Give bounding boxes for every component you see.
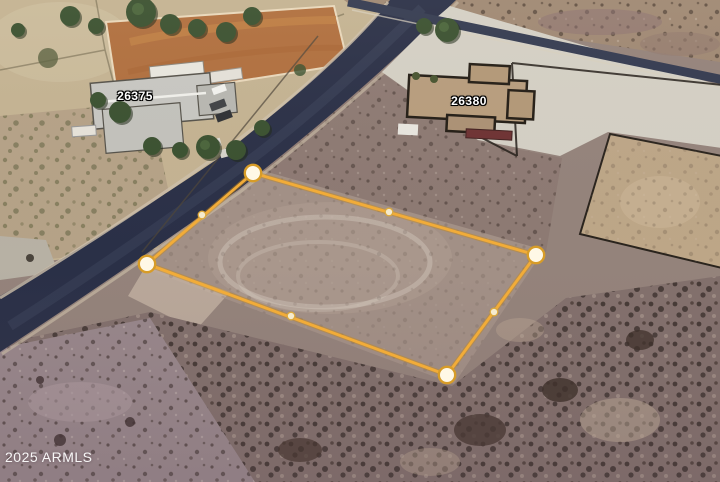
parcel-vertex-handle — [139, 256, 155, 272]
parcel-midpoint-handle — [490, 308, 498, 316]
color-grade-overlay — [0, 0, 720, 482]
parcel-vertex-handle — [528, 247, 544, 263]
aerial-map-image: 26375 26380 2025 ARMLS — [0, 0, 720, 482]
parcel-vertex-handle — [245, 165, 261, 181]
terrain-graphic — [0, 0, 720, 482]
parcel-midpoint-handle — [287, 312, 295, 320]
parcel-midpoint-handle — [198, 211, 206, 219]
parcel-midpoint-handle — [385, 208, 393, 216]
armls-watermark: 2025 ARMLS — [5, 449, 93, 465]
parcel-vertex-handle — [439, 367, 455, 383]
